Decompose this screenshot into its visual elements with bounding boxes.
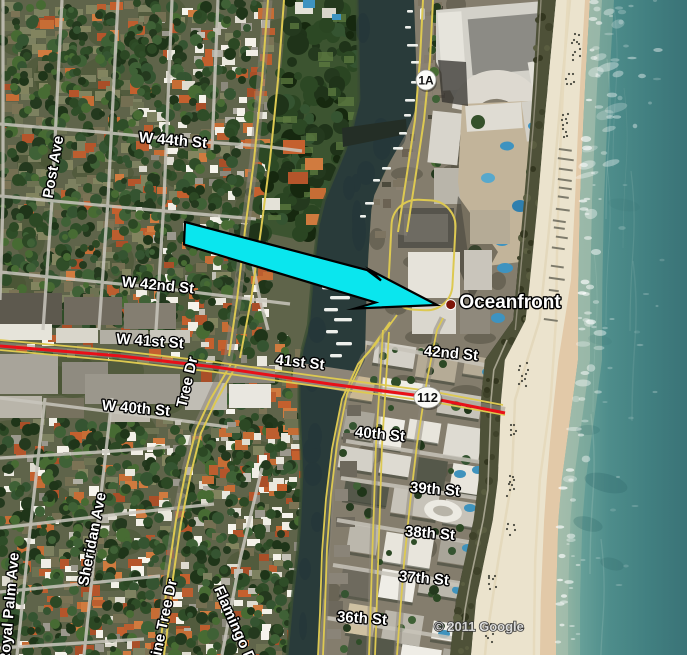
svg-text:Oceanfront: Oceanfront: [459, 292, 561, 313]
svg-text:© 2011 Google: © 2011 Google: [434, 619, 524, 634]
svg-text:112: 112: [417, 390, 438, 405]
svg-text:36th St: 36th St: [336, 608, 387, 628]
svg-text:1A: 1A: [418, 74, 434, 88]
